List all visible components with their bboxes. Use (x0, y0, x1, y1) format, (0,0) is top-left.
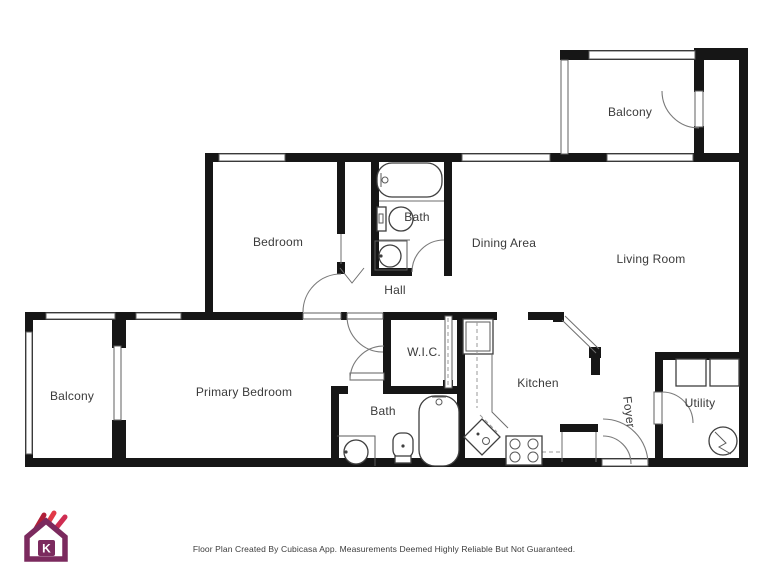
bedroom-door-arc (303, 274, 341, 312)
brand-logo: K (18, 503, 78, 563)
room-label-living-room: Living Room (617, 252, 686, 266)
doors-group (303, 91, 699, 464)
sink-upper-icon (375, 241, 407, 270)
room-label-wic: W.I.C. (407, 345, 441, 359)
refrigerator-icon (463, 319, 493, 354)
washer-icon (676, 359, 706, 386)
room-label-bath-upper: Bath (404, 210, 430, 224)
bath-upper-door-arc (412, 240, 444, 272)
windows-group (26, 51, 703, 466)
stove-icon (506, 436, 542, 465)
room-label-primary-bedroom: Primary Bedroom (196, 385, 292, 399)
room-label-hall: Hall (384, 283, 405, 297)
room-label-balcony-upper: Balcony (608, 105, 652, 119)
toilet-lower-icon (393, 433, 413, 463)
room-label-balcony-lower: Balcony (50, 389, 94, 403)
water-heater-icon (709, 427, 737, 455)
room-label-dining-area: Dining Area (472, 236, 536, 250)
dryer-icon (710, 359, 739, 386)
room-label-kitchen: Kitchen (517, 376, 558, 390)
entry-closet (562, 432, 596, 462)
kitchen-sink-icon (464, 419, 500, 455)
bathtub-upper-icon (377, 163, 444, 201)
footer-disclaimer: Floor Plan Created By Cubicasa App. Meas… (0, 544, 768, 554)
floor-plan-page: Balcony Bedroom Bath Dining Area Living … (0, 0, 768, 576)
room-label-utility: Utility (685, 396, 716, 410)
balcony-door-arc (662, 91, 699, 128)
room-label-bath-lower: Bath (370, 404, 396, 418)
bathtub-lower-icon (419, 396, 459, 466)
room-label-bedroom: Bedroom (253, 235, 303, 249)
